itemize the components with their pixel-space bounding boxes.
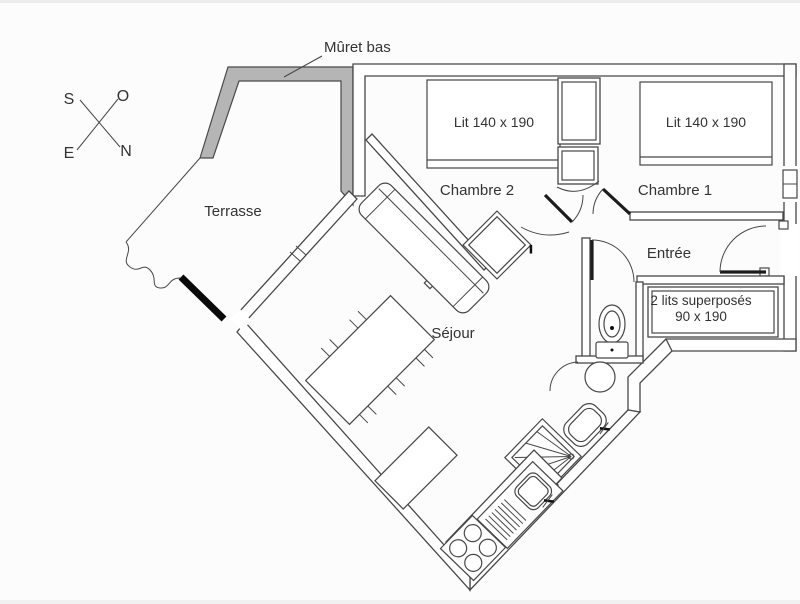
bedroom2-door-swing	[572, 195, 583, 222]
wall-wc-right	[636, 282, 643, 362]
kitchen	[440, 450, 563, 581]
bedroom2-door-leaf	[545, 195, 572, 222]
entry-label: Entrée	[647, 245, 691, 262]
hall-door-swing	[521, 227, 569, 235]
water-heater-icon	[585, 362, 615, 392]
entrance-door-swing	[720, 226, 766, 272]
bedroom1-door-leaf	[603, 189, 630, 214]
bedroom-2: Lit 140 x 190 Chambre 2	[427, 80, 560, 199]
terrace-broken-edge	[126, 242, 180, 288]
compass-label-n: N	[120, 143, 132, 160]
wall-southeast-upper	[628, 339, 672, 412]
compass: S O E N	[64, 88, 132, 162]
living-room: Séjour	[297, 179, 535, 509]
scan-artifact-bottom	[0, 600, 800, 604]
floor-plan: S O E N Mûret bas Terrasse	[0, 0, 800, 604]
compass-label-e: E	[64, 145, 75, 162]
cistern-button	[611, 349, 614, 352]
terrace-edge-line	[126, 158, 200, 242]
toilet-drain	[610, 326, 614, 330]
bunk-alcove: 2 lits superposés 90 x 190	[648, 287, 778, 337]
east-window	[781, 166, 799, 202]
low-wall	[200, 67, 353, 205]
solid-wall-segment	[181, 277, 224, 319]
low-wall-label: Mûret bas	[324, 39, 391, 56]
door-jamb	[779, 221, 788, 229]
closet	[558, 78, 600, 144]
closets	[557, 78, 600, 191]
bedroom1-door-swing	[593, 189, 603, 214]
wc-door-swing	[592, 240, 634, 282]
entrance-opening	[781, 224, 799, 276]
bunk-label-line2: 90 x 190	[675, 309, 727, 324]
compass-label-o: O	[117, 88, 129, 105]
compass-label-s: S	[64, 91, 75, 108]
wall-bedroom1-entry	[630, 212, 783, 220]
entrance-door	[720, 221, 799, 276]
wc	[592, 240, 634, 358]
bed-size-label: Lit 140 x 190	[666, 114, 746, 130]
wall-entry-bunk	[637, 276, 784, 284]
floor-plan-svg: S O E N Mûret bas Terrasse	[0, 0, 800, 604]
wall-wc-left	[582, 238, 590, 362]
bunk-label-line1: 2 lits superposés	[650, 293, 752, 308]
wall-bunk-bottom	[666, 339, 796, 351]
closet	[558, 147, 598, 184]
scan-artifact-top	[0, 0, 800, 3]
compass-line-oe	[77, 99, 118, 150]
bedroom-1: Lit 140 x 190 Chambre 1	[638, 82, 772, 199]
bedroom2-label: Chambre 2	[440, 182, 514, 199]
bedroom1-label: Chambre 1	[638, 182, 712, 199]
compass-line-sn	[80, 100, 120, 147]
bathroom-door-swing	[550, 362, 578, 391]
terrace-label: Terrasse	[204, 203, 262, 220]
terrace: Terrasse	[126, 158, 262, 319]
bed-size-label: Lit 140 x 190	[454, 114, 534, 130]
wall-east	[784, 64, 796, 351]
living-label: Séjour	[431, 325, 474, 342]
